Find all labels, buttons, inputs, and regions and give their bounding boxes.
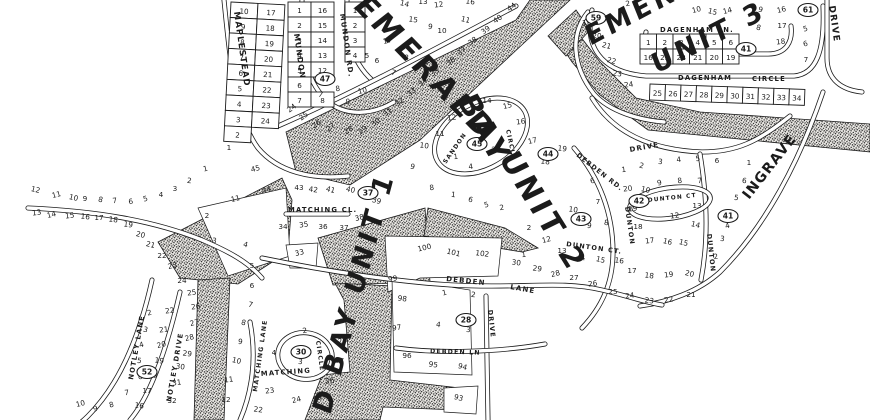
lot-number: 99 [388, 273, 399, 283]
lot-number: 43 [294, 183, 304, 192]
lot-number: 2 [205, 211, 210, 220]
lot-number: 25 [608, 287, 617, 296]
lot-number: 4 [159, 190, 164, 199]
lot-number: 31 [746, 92, 755, 101]
block-number: 28 [461, 316, 472, 325]
lot-number: 15 [65, 210, 75, 220]
lot-number: 13 [32, 207, 43, 217]
lot-number: 34 [278, 222, 288, 231]
lot-number: 19 [123, 219, 134, 229]
lot-number: 4 [353, 51, 358, 60]
lot-number: 26 [191, 301, 202, 311]
lot-number: 7 [297, 96, 302, 105]
lot-number: 16 [134, 400, 145, 410]
lot-number: 24 [624, 79, 635, 89]
lot-number: 3 [173, 184, 178, 193]
lot-number: 15 [408, 14, 418, 24]
block-number: 41 [741, 45, 752, 54]
block-number: 47 [320, 75, 331, 84]
street-label: CIRCLE [752, 75, 786, 83]
block-number: 43 [576, 215, 587, 224]
lot-number: 35 [299, 219, 309, 229]
lot-number: 19 [726, 53, 736, 62]
lot-number: 25 [653, 89, 662, 98]
lot-number: 22 [664, 294, 674, 304]
lot-number: 11 [435, 129, 444, 138]
lot-number: 97 [392, 322, 403, 332]
lot-number: 28 [699, 90, 709, 99]
lot-number: 11 [224, 374, 234, 384]
lot-number: 22 [157, 251, 166, 260]
lot-number: 1 [747, 158, 752, 167]
lot-number: 17 [627, 266, 637, 275]
lot-number: 42 [308, 184, 318, 194]
lot-number: 13 [418, 0, 428, 6]
lot-number: 24 [261, 116, 271, 125]
lot-number: 7 [804, 55, 809, 64]
lot-number: 21 [686, 290, 695, 299]
lot-number: 27 [569, 273, 579, 282]
lot-number: 18 [776, 36, 787, 46]
lot-number: 2 [235, 131, 240, 140]
lot-number: 5 [365, 51, 370, 60]
lot-number: 12 [221, 395, 230, 404]
lot-number: 18 [644, 270, 655, 280]
lot-number: 1 [646, 38, 651, 47]
lot-number: 26 [668, 89, 678, 98]
lot-number: 3 [353, 36, 358, 45]
lot-number: 10 [419, 140, 430, 150]
lot-number: 19 [664, 269, 675, 279]
lot-number: 22 [253, 404, 263, 414]
lot-number: 10 [437, 26, 447, 35]
lot-number: 24 [177, 276, 187, 285]
block-number: 42 [634, 197, 645, 206]
lot-number: 30 [511, 257, 522, 267]
lot-number: 25 [187, 287, 197, 297]
lot-number: 29 [532, 263, 543, 273]
lot-number: 6 [297, 81, 302, 90]
lot-number: 32 [761, 92, 770, 101]
lot-number: 15 [318, 21, 327, 30]
lot-number: 3 [236, 115, 241, 124]
lot-number: 20 [264, 54, 274, 63]
lot-number: 1 [227, 143, 232, 152]
lot-number: 18 [265, 24, 275, 33]
lot-number: 21 [263, 70, 273, 79]
lot-number: 16 [614, 255, 625, 265]
lot-number: 34 [792, 93, 802, 102]
lot-number: 2 [297, 21, 302, 30]
lot-number: 6 [250, 281, 255, 290]
lot-number: 16 [465, 0, 476, 7]
lot-number: 23 [644, 295, 655, 305]
lot-number: 4 [237, 100, 242, 109]
block-number: 52 [142, 368, 153, 377]
lot-number: 30 [730, 91, 740, 100]
lot-number: 16 [516, 116, 527, 126]
lot-number: 17 [645, 235, 656, 245]
lot-number: 96 [402, 351, 412, 360]
lot-number: 4 [272, 348, 277, 357]
lot-number: 36 [318, 222, 328, 231]
lot-number: 13 [692, 201, 702, 210]
lot-number: 29 [715, 91, 725, 100]
lot-number: 102 [475, 248, 490, 259]
lot-number: 19 [265, 39, 275, 48]
block-number: 41 [723, 212, 734, 221]
lot-number: 26 [588, 278, 599, 288]
lot-number: 19 [154, 355, 165, 365]
plat-map: 1017918819720621522423324211621531441351… [0, 0, 870, 420]
block-number: 61 [803, 6, 814, 15]
lot-number: 16 [80, 211, 91, 221]
lot-number: 14 [318, 36, 328, 45]
lot-number: 5 [250, 261, 255, 270]
lot-number: 21 [159, 324, 169, 334]
lot-number: 13 [318, 51, 327, 60]
lot-number: 37 [339, 223, 349, 232]
lot-number: 6 [715, 156, 720, 165]
lot-number: 17 [777, 21, 787, 30]
lot-number: 6 [375, 56, 380, 65]
lot-number: 19 [557, 143, 568, 153]
street-label: DAGENHAM [678, 74, 732, 82]
lot-number: 95 [428, 359, 438, 369]
lot-number: 27 [684, 90, 693, 99]
block-number: 30 [296, 348, 307, 357]
lot-number: 17 [266, 8, 276, 17]
lot-number: 24 [625, 290, 636, 300]
street-label: MATCHING CL. [288, 206, 357, 214]
plat-map-canvas: 1017918819720621522423324211621531441351… [0, 0, 870, 420]
lot-number: 22 [165, 305, 175, 315]
lot-number: 9 [83, 194, 88, 203]
lot-number: 18 [108, 214, 119, 224]
lot-number: 12 [670, 210, 680, 220]
lot-number: 7 [596, 197, 601, 206]
lot-number: 17 [94, 213, 104, 222]
lot-number: 1 [297, 6, 302, 15]
lot-number: 22 [262, 85, 272, 94]
lot-number: 23 [265, 385, 276, 395]
lot-number: 12 [434, 0, 444, 10]
lot-number: 20 [710, 53, 720, 62]
lot-number: 17 [142, 386, 152, 395]
lot-number: 16 [318, 6, 328, 15]
lot-number: 98 [397, 293, 408, 303]
lot-number: 23 [612, 68, 623, 78]
lot-number: 29 [182, 348, 193, 358]
lot-number: 33 [777, 93, 786, 102]
lot-number: 23 [261, 101, 271, 110]
block-number: 44 [543, 150, 554, 159]
